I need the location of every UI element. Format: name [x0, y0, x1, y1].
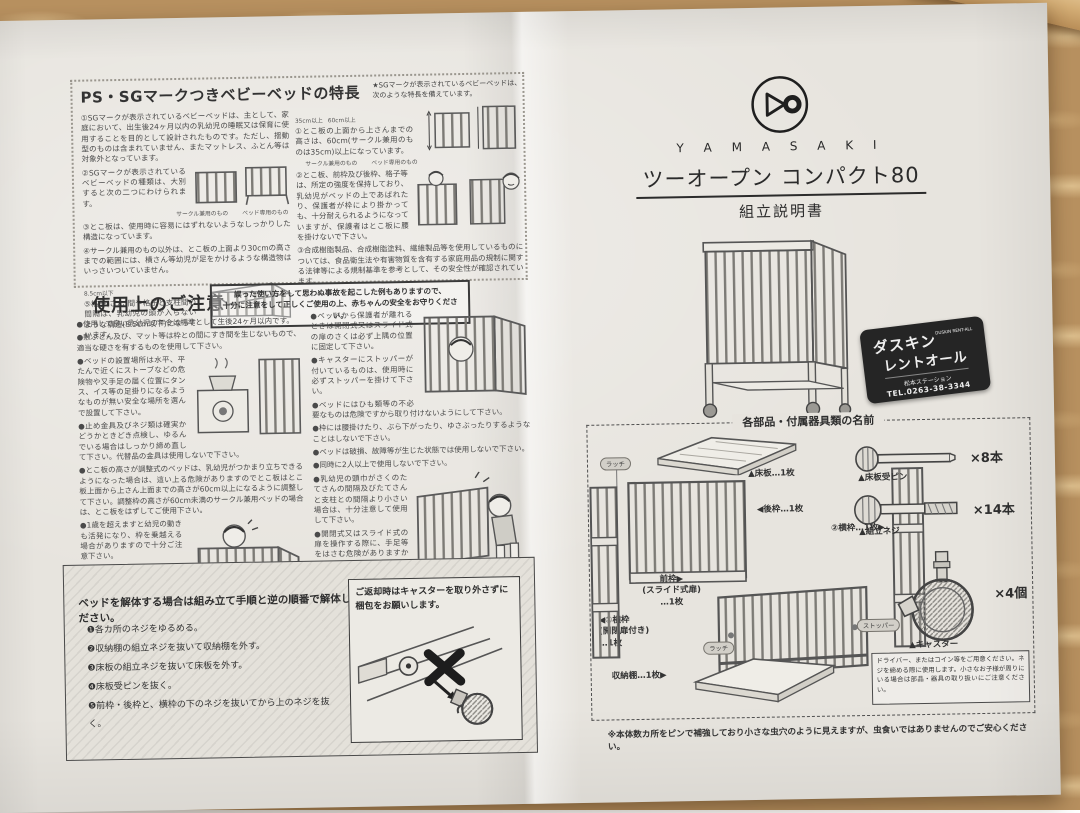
dim-60-label: 60cm以上 — [328, 118, 356, 124]
features-item: ②SGマークが表示されているベビーベッドの種類は、大別すると次の二つにわけられま… — [82, 165, 291, 220]
floor-board-label: ▲床板…1枚 — [748, 468, 795, 480]
front-frame-label: 前枠▶ (スライド式扉) …1枚 — [642, 574, 701, 609]
caution-item: ●乳幼児の頭巾がさくのたてさんの間隔及びたてさんと支柱との間隔より小さい場合は、… — [313, 471, 532, 527]
features-item: ②とこ板、前枠及び後枠、格子等は、所定の強度を保持しており、乳幼児がベッドの上で… — [296, 167, 523, 243]
crib-height-icon — [421, 104, 522, 158]
caster-label: ▲キャスター — [909, 639, 958, 651]
crib-product-illustration — [693, 228, 866, 421]
side-frame1-illustration — [584, 483, 625, 662]
caution-item: ●ベッドの設置場所は水平、平たんで近くにストーブなどの危険物や又手足の届く位置に… — [77, 353, 302, 419]
dim-35-label: 35cm以上 — [295, 118, 323, 124]
features-item: ④サークル兼用のもの以外は、とこ板の上面より30cmの高さまでの範囲には、横さん… — [83, 243, 292, 278]
caution-item: ●とこ板の高さが調整式のベッドは、乳幼児がつかまり立ちできるようになった場合は、… — [79, 462, 304, 518]
disassembly-step: ❺前枠・後枠と、横枠の下のネジを抜いてから上のネジを抜く。 — [88, 693, 347, 735]
features-right-column: 35cm以上 60cm以上 ①とこ板の上面から上さんまでの高さは、60cm(サー… — [295, 104, 524, 291]
parts-box: 各部品・付属器具類の名前 ラッチ ▲床板…1枚 ◀後枠…1枚 ②横枠…1枚▶ — [586, 417, 1035, 721]
product-title: ツーオープン コンパクト80 — [636, 159, 926, 199]
stove-crib-icon — [189, 353, 303, 443]
screw-illustration — [853, 491, 966, 527]
return-note-box: ご返却時はキャスターを取り外さずに 梱包をお願いします。 — [348, 576, 523, 743]
caution-item: ●敷ぶとん及び、マット等は枠との間にすき間を生じないもので、適当な硬さを有するも… — [77, 329, 301, 354]
stopper-label: ストッパー — [857, 618, 901, 632]
pin-label: ▲床板受ピン — [858, 472, 907, 484]
caster-no-removal-icon — [356, 614, 516, 727]
photo-scene: PS・SGマークつきベビーベッドの特長 ★SGマークが表示されているベビーベッド… — [0, 0, 1080, 810]
caution-item: ●1歳を超えますと幼児の動きも活発になり、枠を乗越える場合がありますので十分ご注… — [80, 517, 305, 562]
driver-note-box: ドライバー、またはコイン等をご用意ください。ネジを締める際に使用します。小さなお… — [871, 650, 1030, 705]
floor-pin-illustration — [854, 443, 958, 473]
instruction-sheet: PS・SGマークつきベビーベッドの特長 ★SGマークが表示されているベビーベッド… — [0, 3, 1061, 813]
crib-door-icon — [416, 308, 530, 400]
screw-label: ▲組立ネジ — [859, 526, 900, 538]
screw-qty: ×14本 — [973, 498, 1015, 518]
caution-item: ●枠には腰掛けたり、ぶら下がったり、ゆさぶったりするようなことはしないで下さい。 — [312, 420, 530, 444]
yamasaki-logo-icon — [748, 73, 811, 136]
caution-item: ●ベッドから保護者が離れるときは開閉式又はスライド式の扉のさくは必ず上隅の位置に… — [310, 308, 529, 353]
pin-qty: ×8本 — [970, 447, 1003, 467]
features-item: ③とこ板は、使用時に容易にはずれないようなしっかりした構造になっています。 — [83, 219, 291, 243]
shelf-board-illustration — [687, 650, 838, 705]
shelf-label: 収納棚…1枚▶ — [612, 671, 667, 683]
caster-illustration — [892, 547, 990, 645]
caution-item: ●同時に2人以上で使用しないで下さい。 — [313, 457, 531, 471]
child-faces-icon — [414, 167, 523, 231]
features-box: PS・SGマークつきベビーベッドの特長 ★SGマークが表示されているベビーベッド… — [70, 72, 528, 288]
footnote: ※本体数カ所をピンで補強しており小さな虫穴のように見えますが、虫食いではありませ… — [608, 721, 1028, 752]
crib-pair-icon — [194, 165, 291, 207]
features-item: 35cm以上 60cm以上 ①とこ板の上面から上さんまでの高さは、60cm(サー… — [295, 104, 522, 168]
caution-item: ●ベッドにはひも類等の不必要なものは危険ですから取り付けないようにして下さい。 — [312, 397, 530, 421]
caster-qty: ×4個 — [994, 582, 1027, 602]
features-item: ①SGマークが表示されているベビーベッドは、主として、家庭において、出生後24ヶ… — [81, 110, 290, 165]
duskin-rentall-badge: ダスキン DUSKIN RENT-ALL レントオール 松本ステーション TEL… — [859, 316, 991, 405]
disassembly-box: ベッドを解体する場合は組み立て手順と逆の順番で解体してください。 ❶各カ所のネジ… — [63, 557, 538, 761]
back-frame-label: ◀後枠…1枚 — [757, 504, 804, 516]
caution-columns: ●使用して良い乳幼児の年令は標準として生後24ヶ月以内です。 ●敷ぶとん及び、マ… — [76, 308, 532, 574]
caution-item: ●ベッドは破損、故障等が生じた状態では使用しないで下さい。 — [313, 444, 531, 458]
brand-block: Y A M A S A K I ツーオープン コンパクト80 組立説明書 — [624, 71, 937, 224]
document-title: 組立説明書 — [626, 198, 936, 224]
disassembly-steps: ❶各カ所のネジをゆるめる。 ❷収納棚の組立ネジを抜いて収納棚を外す。 ❸床板の組… — [87, 617, 347, 735]
caution-item: ●使用して良い乳幼児の年令は標準として生後24ヶ月以内です。 — [76, 316, 300, 330]
caution-right-column: ●ベッドから保護者が離れるときは開閉式又はスライド式の扉のさくは必ず上隅の位置に… — [310, 308, 533, 594]
parts-title: 各部品・付属器具類の名前 — [732, 412, 884, 431]
features-note: ★SGマークが表示されているベビーベッドは、 次のような特長を備えています。 — [372, 79, 524, 101]
return-note: ご返却時はキャスターを取り外さずに 梱包をお願いします。 — [355, 583, 513, 615]
